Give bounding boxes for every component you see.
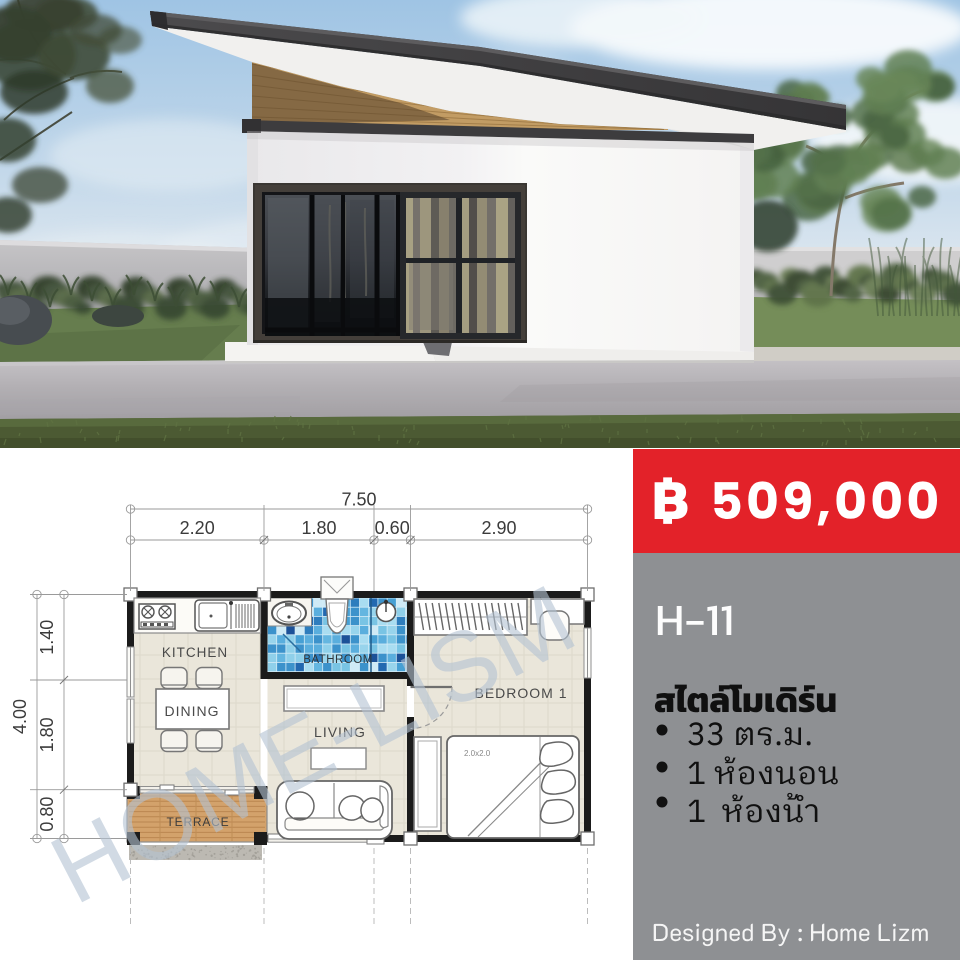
svg-text:4.00: 4.00 [10, 699, 30, 734]
svg-text:1.80: 1.80 [37, 717, 57, 752]
svg-text:1.80: 1.80 [301, 518, 336, 538]
svg-text:KITCHEN: KITCHEN [162, 645, 228, 660]
svg-text:DINING: DINING [165, 703, 220, 719]
svg-text:0.60: 0.60 [375, 518, 410, 538]
svg-text:2.20: 2.20 [180, 518, 215, 538]
svg-text:2.0x2.0: 2.0x2.0 [464, 749, 491, 758]
svg-text:7.50: 7.50 [341, 490, 376, 510]
svg-text:2.90: 2.90 [481, 518, 516, 538]
svg-text:1.40: 1.40 [37, 620, 57, 655]
